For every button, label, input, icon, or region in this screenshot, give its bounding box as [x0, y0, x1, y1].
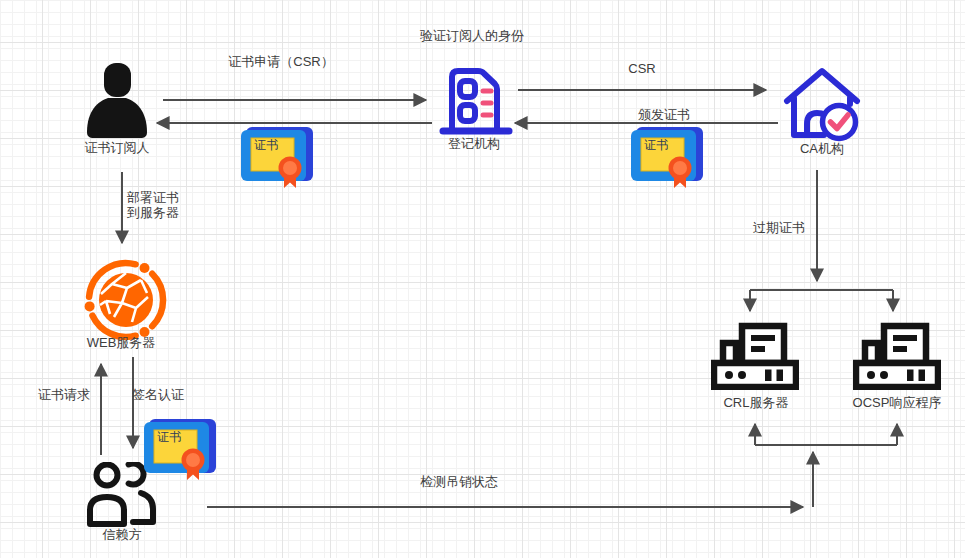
check-revocation-label: 检测吊销状态	[389, 474, 529, 489]
relying-party-label: 信赖方	[52, 527, 192, 542]
certificate-badge: 证书	[144, 419, 216, 481]
ca-house-icon	[782, 62, 862, 148]
certificate-badge-label: 证书	[644, 139, 668, 152]
ocsp-responder-label: OCSP响应程序	[827, 395, 965, 410]
cert-apply-csr-label: 证书申请（CSR）	[211, 54, 351, 69]
registration-label: 登记机构	[404, 136, 544, 151]
csr-label: CSR	[572, 61, 712, 76]
signature-auth-label: 签名认证	[132, 387, 184, 402]
subscriber-person-icon	[84, 63, 150, 142]
verify-identity-label: 验证订阅人的身份	[402, 28, 542, 43]
certificate-badge-label: 证书	[254, 139, 278, 152]
web-server-label: WEB服务器	[51, 335, 191, 350]
cert-request-label: 证书请求	[38, 387, 90, 402]
diagram-canvas: 证书 证书 证书 证书订阅人 登记机构 CA机构 WEB服务器 信赖方 CRL服…	[0, 0, 965, 558]
deploy-cert-label: 部署证书 到服务器	[127, 190, 179, 220]
registration-building-icon	[436, 60, 516, 144]
ca-label: CA机构	[752, 141, 892, 156]
web-server-globe-icon	[84, 257, 168, 345]
issue-cert-label: 颁发证书	[594, 107, 734, 122]
expired-cert-label: 过期证书	[753, 220, 805, 235]
subscriber-label: 证书订阅人	[47, 140, 187, 155]
certificate-badge-label: 证书	[157, 431, 181, 444]
certificate-badge: 证书	[631, 127, 703, 189]
crl-server-icon	[711, 322, 799, 394]
certificate-badge: 证书	[241, 127, 313, 189]
ocsp-responder-icon	[853, 322, 941, 394]
crl-server-label: CRL服务器	[686, 395, 826, 410]
